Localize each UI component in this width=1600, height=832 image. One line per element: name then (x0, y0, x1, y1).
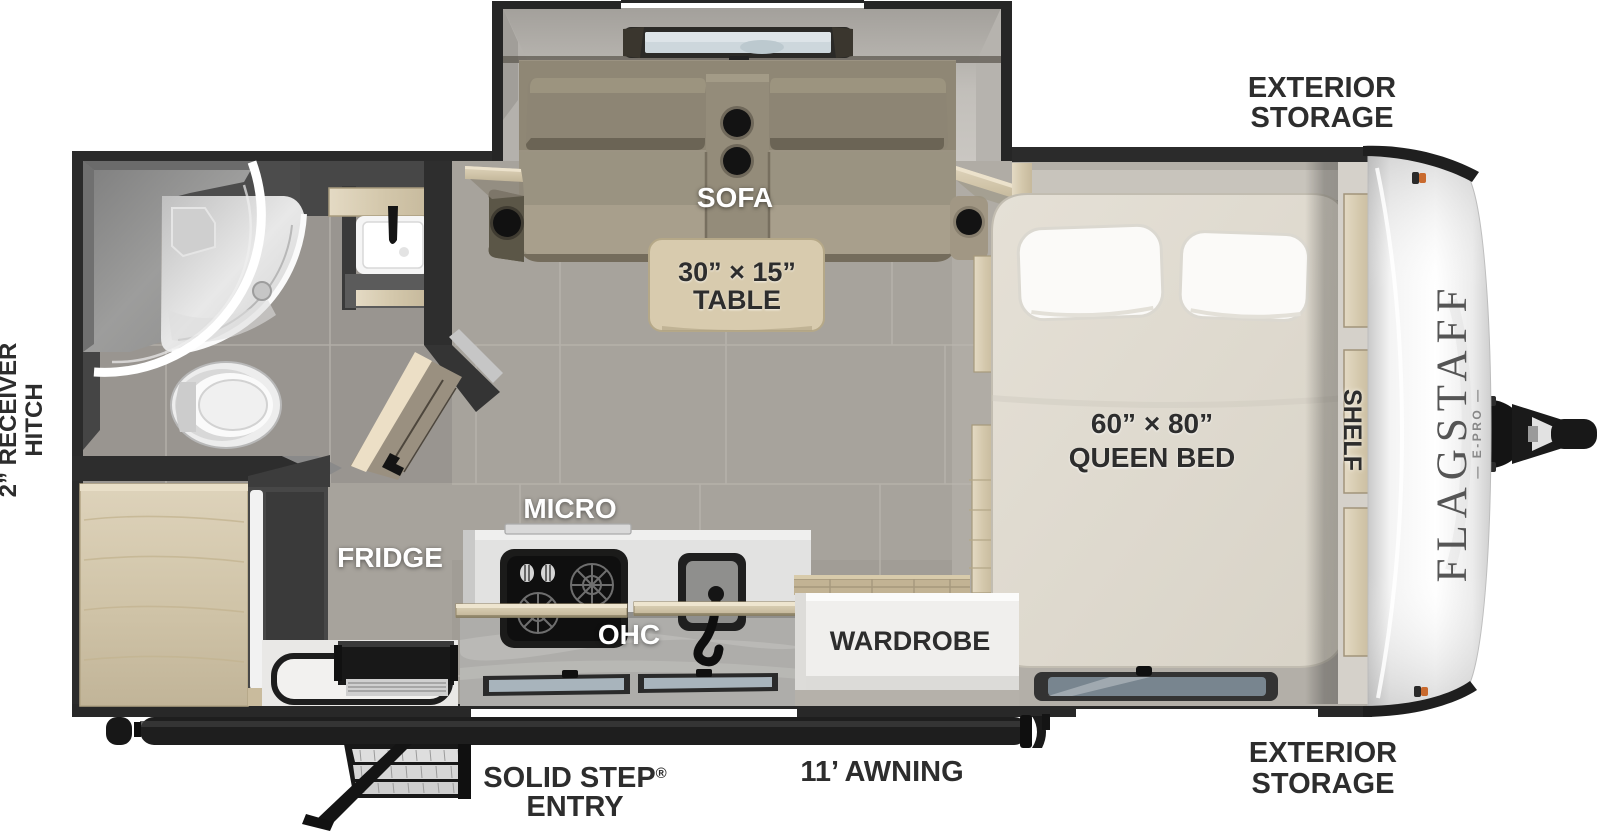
svg-text:60” × 80”: 60” × 80” (1091, 408, 1213, 439)
svg-text:EXTERIOR: EXTERIOR (1248, 72, 1396, 104)
svg-text:2” RECEIVER: 2” RECEIVER (0, 343, 22, 498)
svg-text:11’ AWNING: 11’ AWNING (800, 756, 963, 788)
svg-text:TABLE: TABLE (693, 285, 781, 315)
svg-text:HITCH: HITCH (21, 383, 48, 456)
svg-text:STORAGE: STORAGE (1252, 768, 1395, 800)
svg-text:EXTERIOR: EXTERIOR (1249, 737, 1397, 769)
svg-text:MICRO: MICRO (523, 493, 616, 524)
svg-text:SOFA: SOFA (697, 182, 773, 213)
svg-text:QUEEN BED: QUEEN BED (1069, 442, 1235, 473)
svg-text:30” × 15”: 30” × 15” (678, 257, 796, 287)
svg-text:STORAGE: STORAGE (1251, 102, 1394, 134)
svg-text:OHC: OHC (598, 619, 660, 650)
svg-text:SHELF: SHELF (1338, 389, 1366, 471)
svg-text:— E-PRO —: — E-PRO — (1470, 387, 1484, 478)
svg-text:SOLID STEP®: SOLID STEP® (483, 762, 666, 794)
svg-text:ENTRY: ENTRY (526, 791, 623, 823)
svg-text:FLAGSTAFF: FLAGSTAFF (1429, 282, 1476, 583)
svg-text:FRIDGE: FRIDGE (337, 542, 443, 573)
svg-text:WARDROBE: WARDROBE (830, 626, 991, 656)
